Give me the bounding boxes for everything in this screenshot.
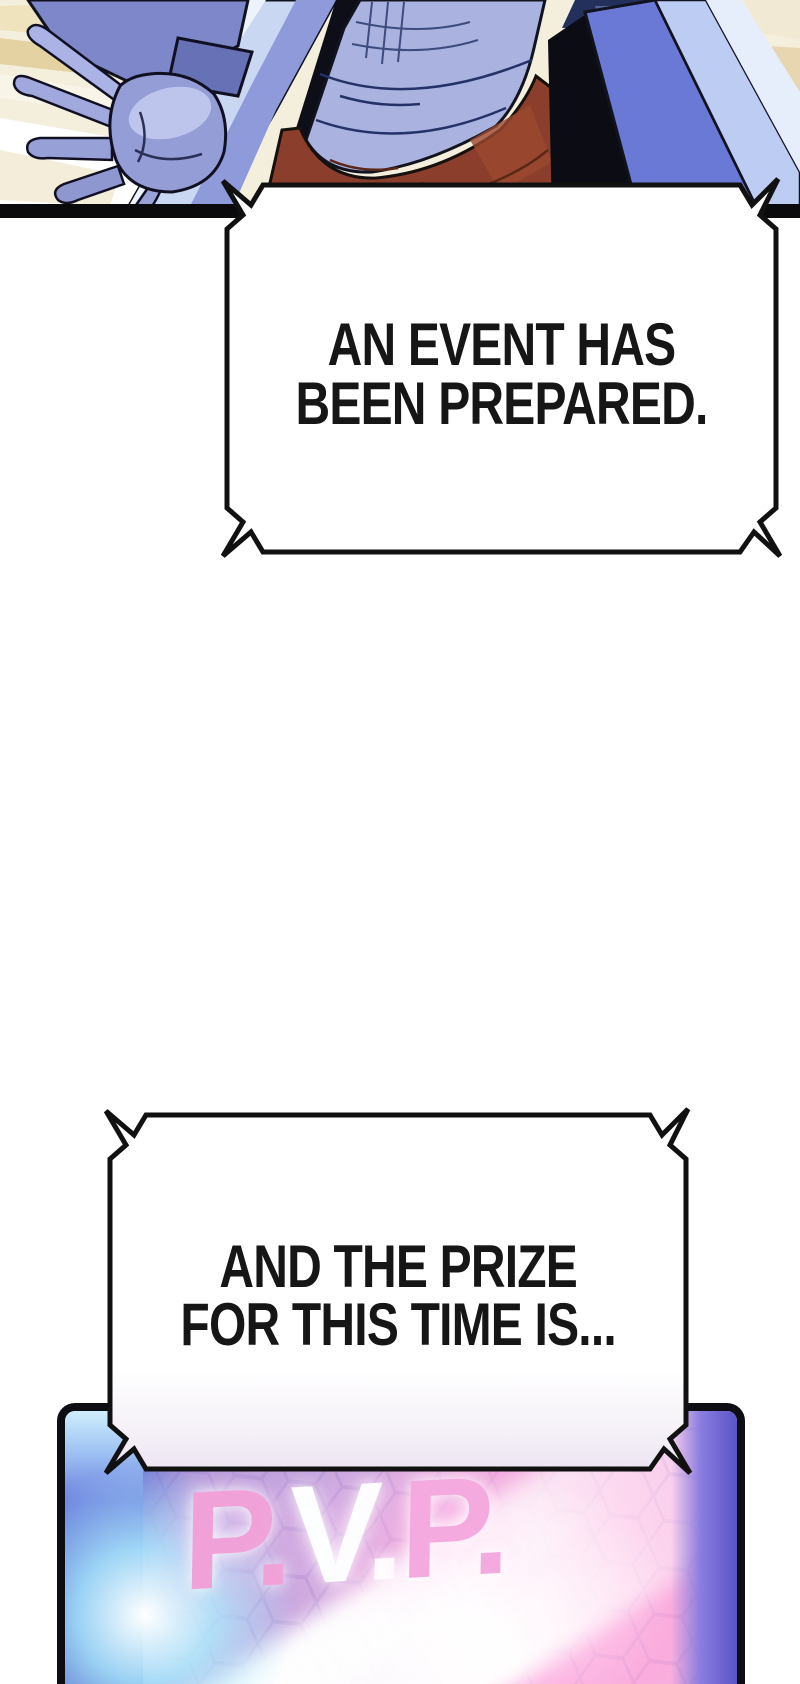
caption-line: AND THE PRIZE — [180, 1238, 615, 1296]
webtoon-page: P.V.P. AN EVENT HAS BEEN PREPARED. AND T… — [0, 0, 800, 1684]
caption-line: BEEN PREPARED. — [295, 375, 707, 433]
caption-line: FOR THIS TIME IS... — [180, 1296, 615, 1354]
caption-prize-text: AND THE PRIZE FOR THIS TIME IS... — [180, 1238, 615, 1354]
pvp-letter: P — [182, 1459, 256, 1620]
caption-line: AN EVENT HAS — [295, 316, 707, 374]
pvp-letter: . — [253, 1457, 291, 1616]
caption-event-text: AN EVENT HAS BEEN PREPARED. — [295, 316, 707, 432]
narration-box-prize: AND THE PRIZE FOR THIS TIME IS... — [110, 1115, 686, 1469]
finger-ring — [27, 138, 112, 160]
narration-box-event: AN EVENT HAS BEEN PREPARED. — [227, 185, 776, 552]
